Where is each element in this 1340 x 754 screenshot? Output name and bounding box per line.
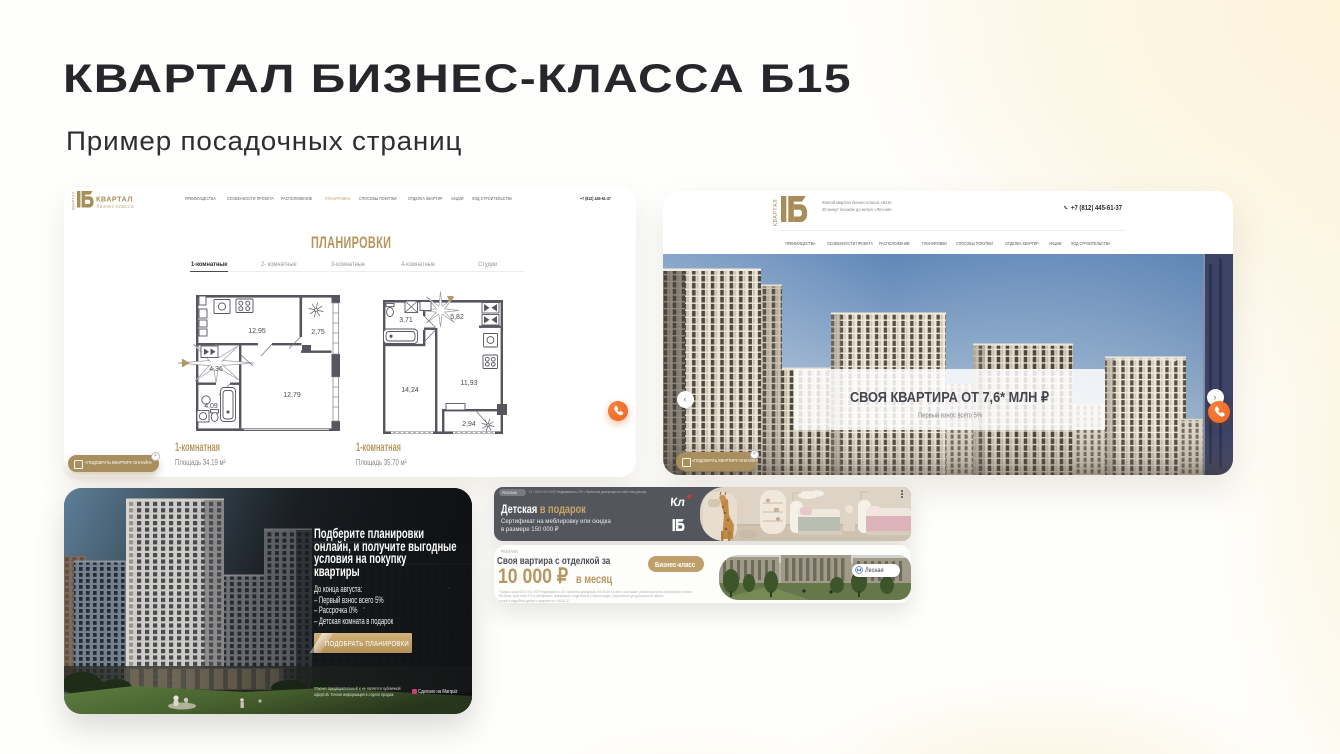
- svg-text:КВАРТАЛ: КВАРТАЛ: [773, 199, 779, 226]
- svg-text:11,93: 11,93: [461, 380, 478, 387]
- svg-text:4,09: 4,09: [204, 403, 218, 410]
- svg-text:12,79: 12,79: [283, 392, 301, 399]
- svg-text:2,94: 2,94: [462, 421, 476, 428]
- svg-text:СВОЯ КВАРТИРА ОТ 7,6* МЛН ₽: СВОЯ КВАРТИРА ОТ 7,6* МЛН ₽: [850, 390, 1050, 406]
- svg-text:3,71: 3,71: [399, 317, 413, 324]
- svg-text:КВАРТАЛ: КВАРТАЛ: [96, 195, 133, 204]
- svg-text:Кл: Кл: [671, 495, 686, 508]
- svg-text:5,82: 5,82: [450, 314, 464, 321]
- svg-text:14,24: 14,24: [401, 387, 419, 394]
- svg-text:2,75: 2,75: [311, 329, 325, 336]
- svg-text:4,36: 4,36: [209, 366, 223, 373]
- svg-text:12,95: 12,95: [248, 328, 266, 335]
- svg-text:КВАРТАЛ: КВАРТАЛ: [72, 191, 76, 210]
- svg-text:бизнес-класса: бизнес-класса: [97, 204, 134, 210]
- svg-text:Первый взнос всего 5%: Первый взнос всего 5%: [918, 412, 982, 420]
